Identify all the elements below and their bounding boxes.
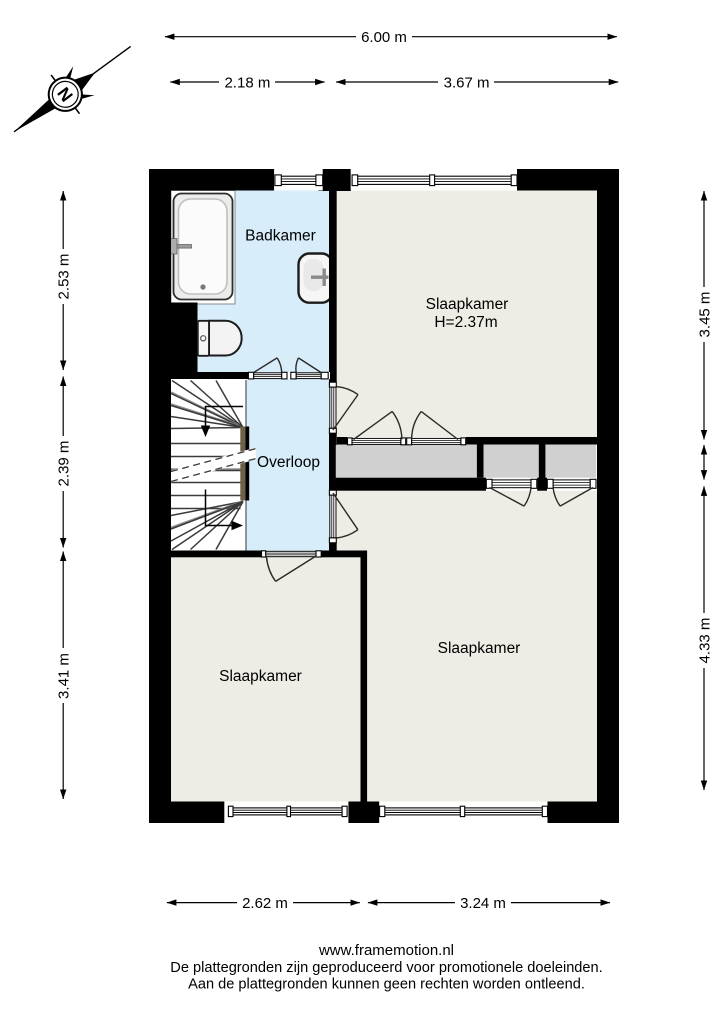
svg-text:3.45 m: 3.45 m xyxy=(696,292,713,338)
svg-text:Overloop: Overloop xyxy=(257,454,320,471)
svg-text:Slaapkamer: Slaapkamer xyxy=(438,640,521,657)
svg-text:3.41 m: 3.41 m xyxy=(56,653,73,699)
svg-text:2.18 m: 2.18 m xyxy=(224,74,270,91)
svg-text:Aan de plattegronden kunnen ge: Aan de plattegronden kunnen geen rechten… xyxy=(188,976,585,992)
svg-text:H=2.37m: H=2.37m xyxy=(434,314,497,331)
svg-text:2.39 m: 2.39 m xyxy=(56,441,73,487)
svg-text:www.framemotion.nl: www.framemotion.nl xyxy=(318,942,454,959)
svg-text:Slaapkamer: Slaapkamer xyxy=(426,296,509,313)
svg-text:6.00 m: 6.00 m xyxy=(361,29,407,46)
svg-text:3.67 m: 3.67 m xyxy=(444,74,490,91)
svg-text:4.33 m: 4.33 m xyxy=(696,618,713,664)
svg-text:2.62 m: 2.62 m xyxy=(242,895,288,912)
svg-text:3.24 m: 3.24 m xyxy=(460,895,506,912)
svg-text:2.53 m: 2.53 m xyxy=(56,254,73,300)
svg-text:Badkamer: Badkamer xyxy=(245,228,316,245)
svg-text:De plattegronden zijn geproduc: De plattegronden zijn geproduceerd voor … xyxy=(170,960,602,976)
svg-text:Slaapkamer: Slaapkamer xyxy=(219,668,302,685)
